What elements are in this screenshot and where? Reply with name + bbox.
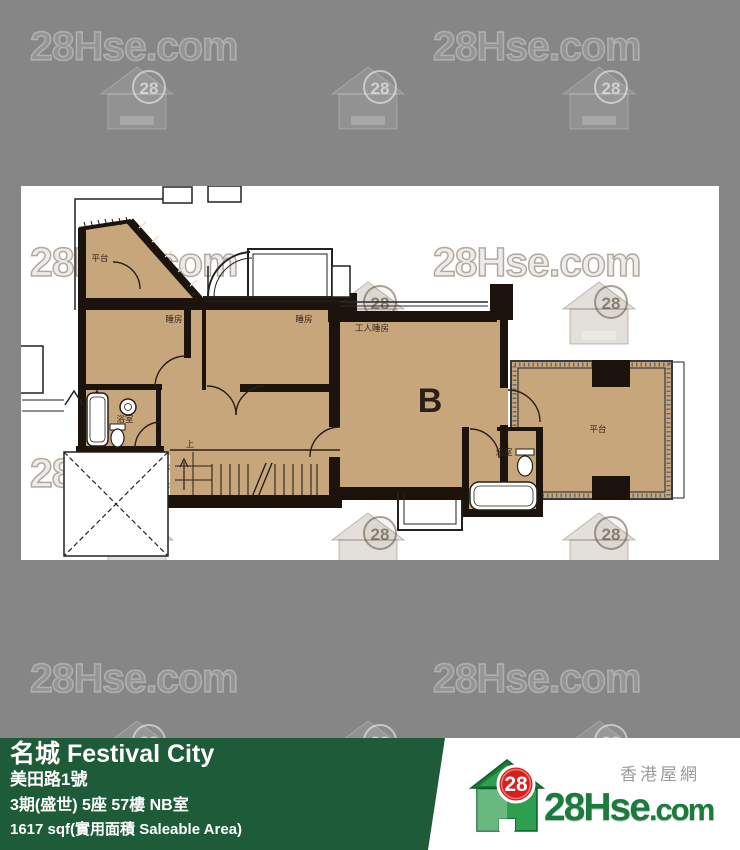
label-bathroom2: 浴室 [495, 447, 513, 457]
logo-tagline: 香港屋網 [620, 760, 700, 785]
unit-letter: B [418, 382, 443, 420]
floorplan-panel: 28Hse.com28Hse.com28Hse.com28Hse.com2828… [21, 186, 719, 560]
floorplan-drawing: 平台 睡房 睡房 工人睡房 浴室 浴室 平台 上 B [21, 186, 719, 560]
room-bedroom2 [202, 300, 333, 392]
building-unit: 3期(盛世) 5座 57樓 NB室 [10, 797, 189, 815]
logo-badge-number: 28 [504, 773, 528, 796]
watermark-text: 28Hse.com [30, 26, 238, 67]
sink1 [120, 399, 136, 415]
toilet2-tank [516, 449, 534, 455]
label-servant-room: 工人睡房 [355, 323, 389, 333]
terrace-pillar-top [592, 360, 630, 387]
logo-brand-suffix: .com [649, 792, 713, 827]
svg-text:28: 28 [602, 79, 621, 98]
watermark-text: 28Hse.com [433, 26, 641, 67]
label-bedroom2: 睡房 [295, 314, 312, 324]
watermark-house-icon: 28 [562, 66, 636, 130]
label-terrace-right: 平台 [589, 424, 606, 434]
info-bar: 名城 Festival City 美田路1號 3期(盛世) 5座 57樓 NB室… [0, 738, 740, 850]
watermark-text: 28Hse.com [433, 658, 641, 699]
watermark-text: 28Hse.com [30, 658, 238, 699]
logo-brand-main: 28Hse [544, 786, 649, 829]
svg-text:28: 28 [140, 79, 159, 98]
floorplan-page: { "watermark": { "text": "28Hse.com", "b… [0, 0, 740, 850]
building-name: 名城 Festival City [10, 741, 214, 769]
logo-house-icon: 28 [469, 757, 545, 833]
label-stairs-up: 上 [186, 439, 195, 449]
building-address: 美田路1號 [10, 771, 87, 790]
watermark-house-icon: 28 [100, 66, 174, 130]
watermark-house-icon: 28 [331, 66, 405, 130]
label-bathroom1: 浴室 [116, 414, 134, 424]
toilet2 [518, 456, 533, 476]
label-bedroom1: 睡房 [165, 314, 182, 324]
building-area: 1617 sqf(實用面積 Saleable Area) [10, 822, 242, 839]
label-terrace-top: 平台 [91, 253, 108, 263]
sill-lines [340, 302, 488, 306]
toilet1 [111, 429, 124, 447]
svg-text:28: 28 [371, 79, 390, 98]
terrace-pillar-bottom [592, 476, 630, 500]
logo-brand: 28Hse.com [544, 786, 713, 830]
